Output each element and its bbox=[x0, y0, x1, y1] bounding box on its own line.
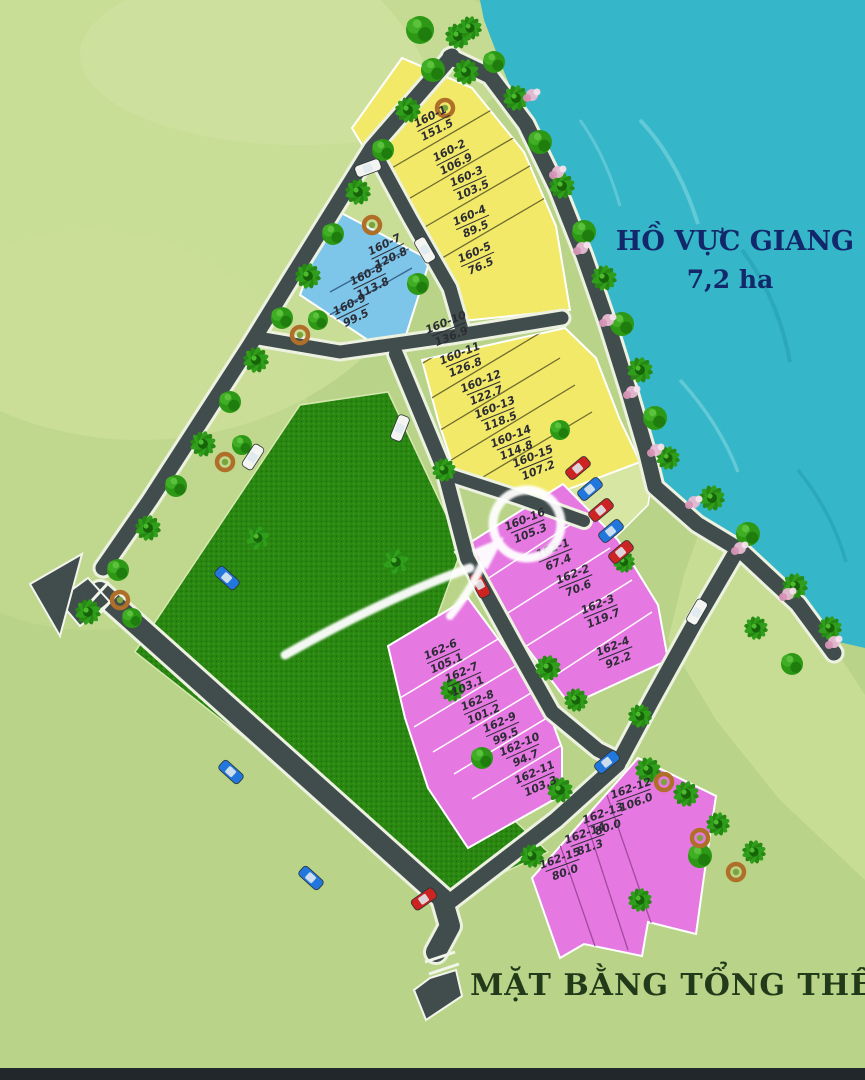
bush-tree-icon bbox=[165, 475, 187, 497]
bush-tree-icon bbox=[421, 58, 445, 82]
bush-tree-icon bbox=[406, 16, 434, 44]
bush-tree-icon bbox=[372, 139, 394, 161]
bush-tree-icon bbox=[407, 273, 429, 295]
bush-tree-icon bbox=[528, 130, 552, 154]
bush-tree-icon bbox=[483, 51, 505, 73]
site-plan-page: 160-1151.5160-2106.9160-3103.5160-489.51… bbox=[0, 0, 865, 1080]
bush-tree-icon bbox=[219, 391, 241, 413]
bush-tree-icon bbox=[550, 420, 570, 440]
bush-tree-icon bbox=[322, 223, 344, 245]
site-plan-map: 160-1151.5160-2106.9160-3103.5160-489.51… bbox=[0, 0, 865, 1080]
bush-tree-icon bbox=[107, 559, 129, 581]
page-title: MẶT BẰNG TỔNG THỂ bbox=[470, 961, 865, 1003]
bush-tree-icon bbox=[271, 307, 293, 329]
bush-tree-icon bbox=[122, 608, 142, 628]
bush-tree-icon bbox=[471, 747, 493, 769]
lake-name: HỒ VỰC GIANG bbox=[616, 220, 854, 257]
bush-tree-icon bbox=[572, 220, 596, 244]
lake-area: 7,2 ha bbox=[687, 265, 774, 294]
bush-tree-icon bbox=[308, 310, 328, 330]
bush-tree-icon bbox=[643, 406, 667, 430]
bush-tree-icon bbox=[781, 653, 803, 675]
bottom-bar bbox=[0, 1068, 865, 1080]
